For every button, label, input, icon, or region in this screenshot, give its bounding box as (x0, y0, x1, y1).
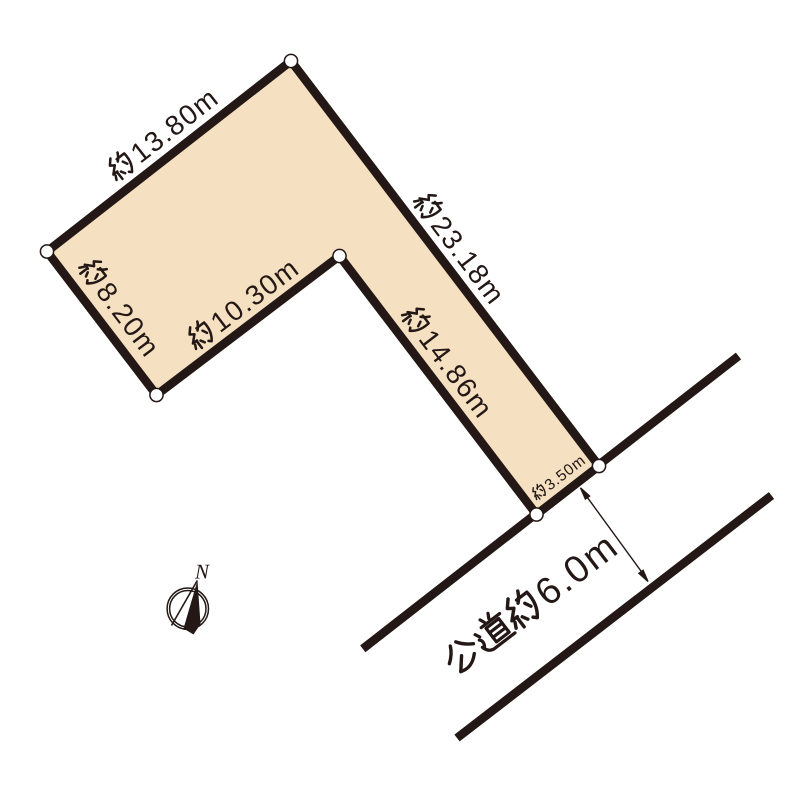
svg-text:N: N (194, 559, 210, 583)
